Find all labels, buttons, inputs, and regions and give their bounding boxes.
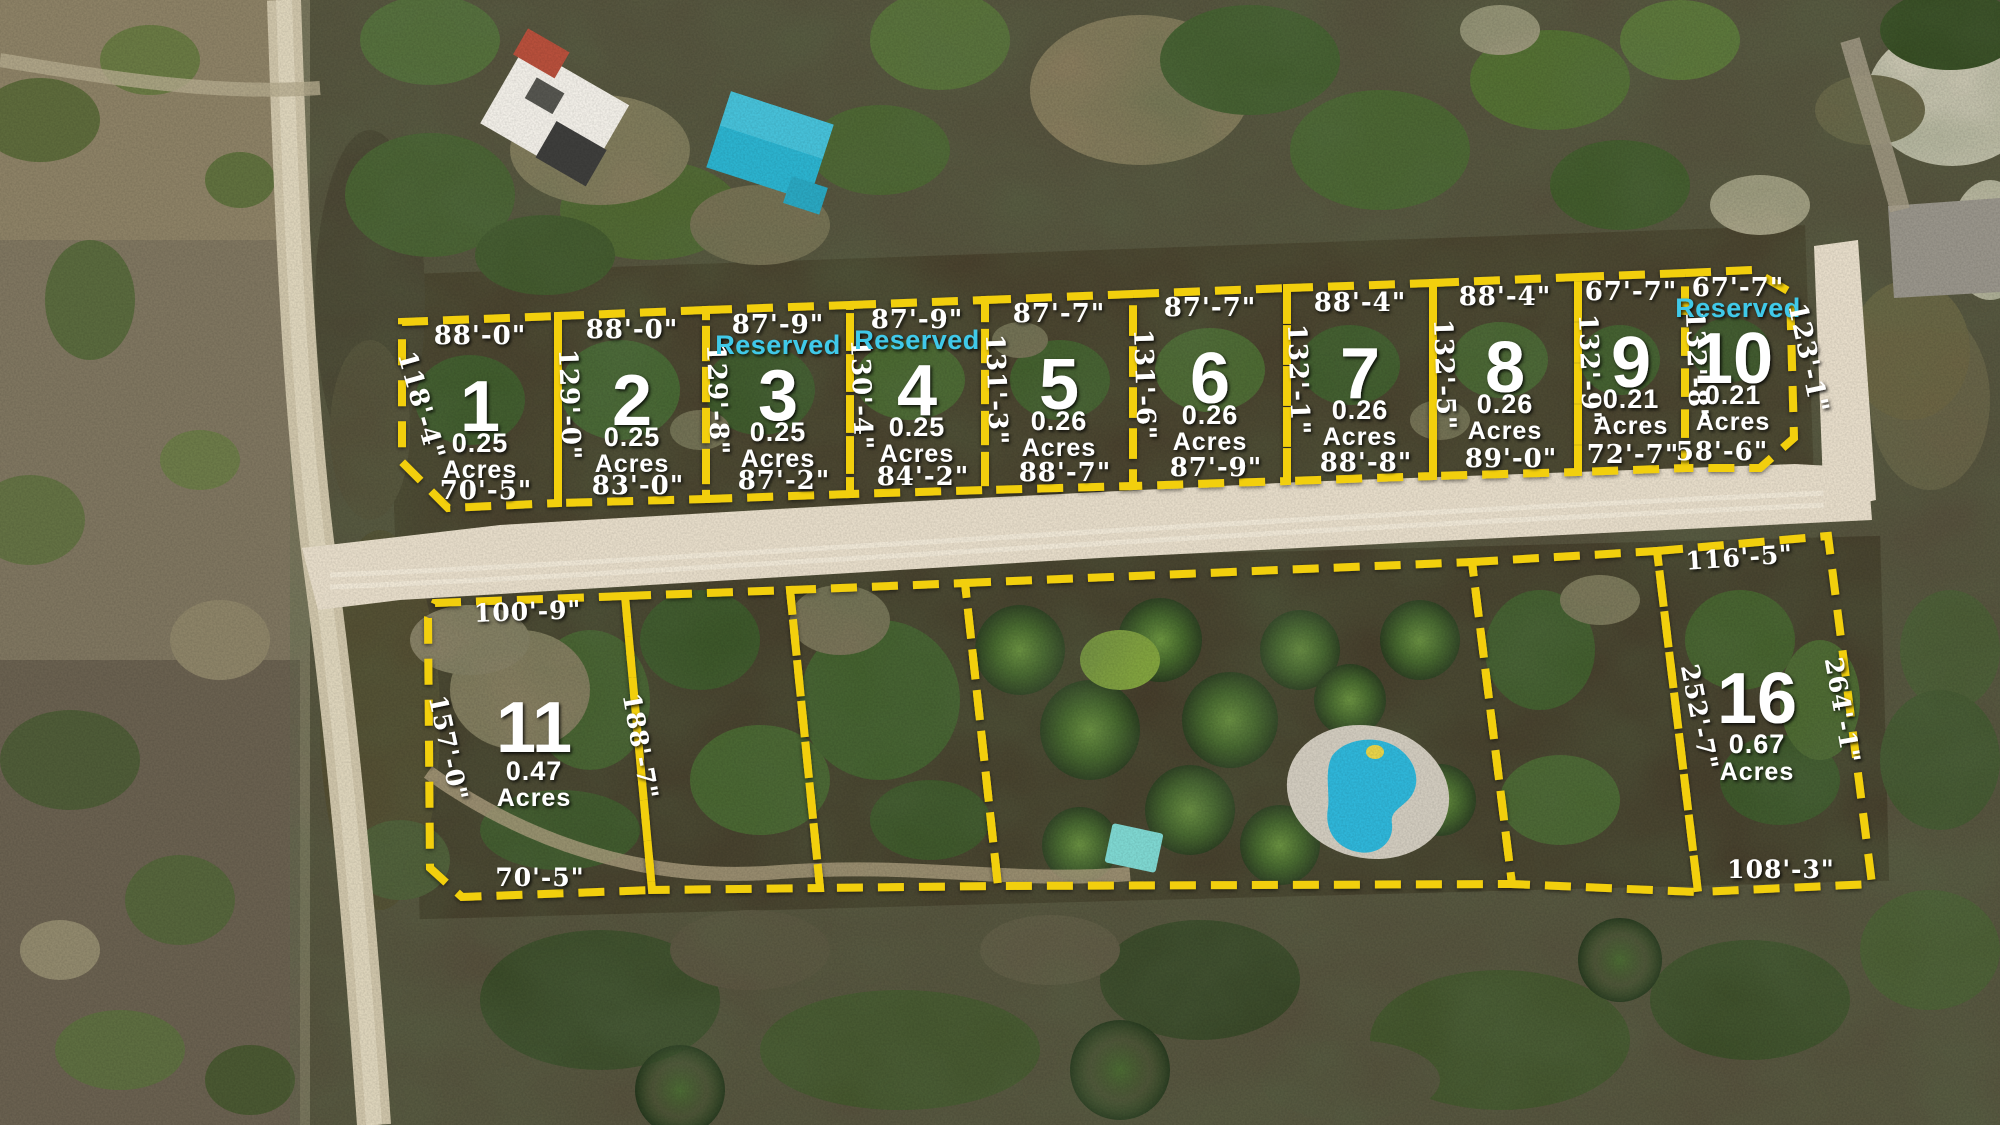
lot11-dim-bottom: 70'-5" [495, 863, 584, 892]
lot6-dim-right: 132'-1" [1281, 323, 1315, 436]
lot5-acres: 0.26 [1031, 406, 1088, 436]
lot16-dim-bottom: 108'-3" [1727, 855, 1835, 884]
lot1-dim-top: 88'-0" [434, 321, 527, 351]
lot4-dim-bottom: 84'-2" [877, 462, 970, 492]
lot8-dim-top: 88'-4" [1459, 282, 1552, 312]
lot5-dim-top: 87'-7" [1013, 299, 1106, 329]
lot6-dim-top: 87'-7" [1164, 293, 1257, 323]
lot10-dim-bottom: 58'-6" [1676, 437, 1769, 467]
lot7-dim-top: 88'-4" [1314, 288, 1407, 318]
lot8-dim-right: 132'-9" [1572, 313, 1606, 426]
lot2-acres: 0.25 [604, 422, 661, 452]
lot1-dim-right: 129'-0" [552, 348, 586, 461]
lot6-dim-bottom: 87'-9" [1170, 453, 1263, 483]
lot7-acres: 0.26 [1332, 395, 1389, 425]
lot7-unit: Acres [1323, 423, 1398, 451]
lot11-unit: Acres [497, 784, 572, 812]
lot1-acres: 0.25 [452, 428, 509, 458]
lot16-unit: Acres [1720, 758, 1795, 786]
lot16-number: 16 [1717, 659, 1797, 739]
lot3-dim-right: 130'-4" [844, 338, 878, 451]
lot1-dim-bottom: 70'-5" [440, 476, 533, 506]
lot6-acres: 0.26 [1182, 400, 1239, 430]
lot6-unit: Acres [1173, 428, 1248, 456]
lot5-dim-bottom: 88'-7" [1019, 458, 1112, 488]
lot8-unit: Acres [1468, 417, 1543, 445]
lot9-unit: Acres [1594, 412, 1669, 440]
lot3-acres: 0.25 [750, 417, 807, 447]
lot8-dim-bottom: 89'-0" [1465, 444, 1558, 474]
lot8-acres: 0.26 [1477, 389, 1534, 419]
lot3-dim-bottom: 87'-2" [738, 466, 831, 496]
lot9-dim-top: 67'-7" [1585, 277, 1678, 307]
lot2-dim-right: 129'-8" [700, 343, 734, 456]
lot16-acres: 0.67 [1729, 729, 1786, 759]
lot10-unit: Acres [1696, 408, 1771, 436]
lot7-dim-bottom: 88'-8" [1320, 448, 1413, 478]
lot4-dim-right: 131'-3" [979, 333, 1013, 446]
lot11-dim-top: 100'-9" [473, 595, 582, 628]
lot9-dim-bottom: 72'-7" [1587, 440, 1680, 470]
lot10-acres: 0.21 [1705, 380, 1762, 410]
aerial-subdivision-photo: 88'-0" 1 0.25 Acres 70'-5" 118'-4" 129'-… [0, 0, 2000, 1125]
lot2-dim-top: 88'-0" [586, 315, 679, 345]
lot5-dim-right: 131'-6" [1127, 328, 1161, 441]
lot4-acres: 0.25 [889, 412, 946, 442]
lot9-acres: 0.21 [1603, 384, 1660, 414]
lot2-dim-bottom: 83'-0" [592, 471, 685, 501]
lot11-acres: 0.47 [506, 756, 563, 786]
lot7-dim-right: 132'-5" [1427, 318, 1461, 431]
